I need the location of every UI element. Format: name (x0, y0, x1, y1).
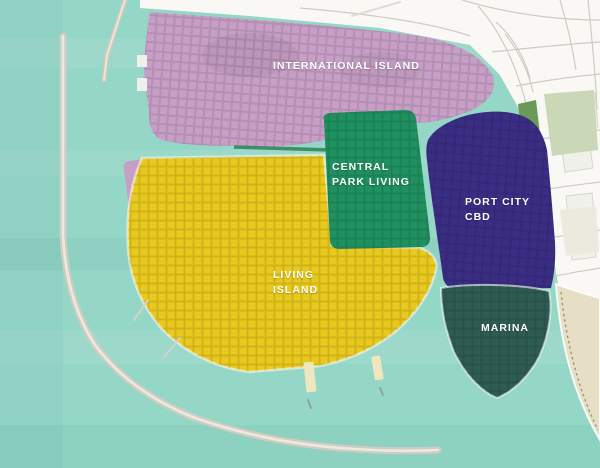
map-canvas: INTERNATIONAL ISLAND LIVING ISLAND CENTR… (0, 0, 600, 468)
international-island-label: INTERNATIONAL ISLAND (273, 60, 420, 72)
central-park-living-label-line1: CENTRAL (332, 161, 389, 173)
port-city-masterplan-map: INTERNATIONAL ISLAND LIVING ISLAND CENTR… (0, 0, 600, 468)
living-island-label-line1: LIVING (273, 269, 314, 281)
central-park-living-label-line2: PARK LIVING (332, 176, 410, 188)
mainland-open-area (560, 206, 599, 256)
marina-label: MARINA (481, 322, 529, 334)
dock-notch (137, 55, 147, 67)
park-large (544, 90, 598, 156)
region-port-city-cbd[interactable]: PORT CITY CBD (426, 112, 555, 291)
region-central-park-living[interactable]: CENTRAL PARK LIVING (324, 110, 431, 249)
dock-notch (137, 78, 147, 91)
living-island-label-line2: ISLAND (273, 284, 318, 296)
port-city-cbd-label-line1: PORT CITY (465, 196, 530, 208)
port-city-cbd-label-line2: CBD (465, 211, 491, 223)
